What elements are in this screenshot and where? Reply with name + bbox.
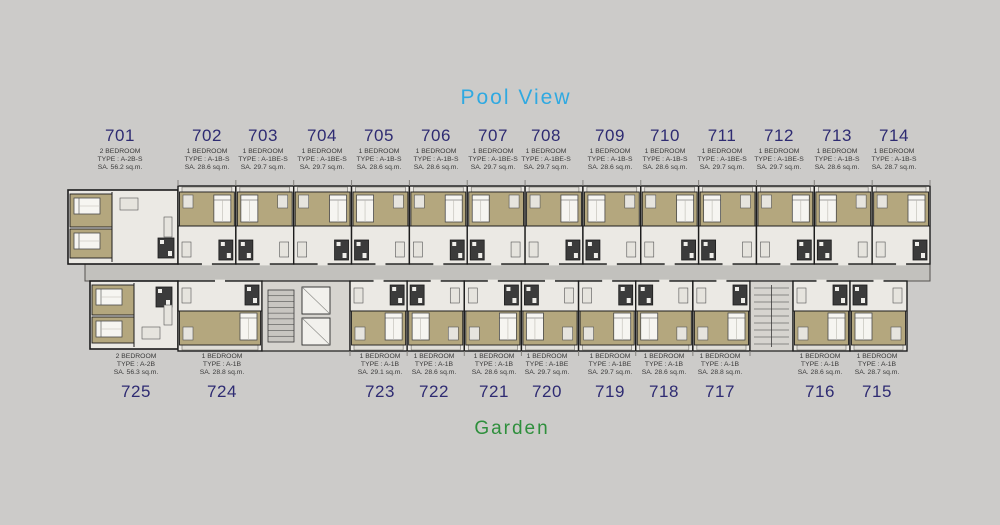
unit-number: 725 xyxy=(114,382,159,402)
unit-number: 715 xyxy=(855,382,900,402)
unit-label-702: 7021 BEDROOMTYPE : A-1B-SSA. 28.6 sq.m. xyxy=(185,126,230,172)
unit-number: 717 xyxy=(698,382,743,402)
unit-info: 1 BEDROOMTYPE : A-1BSA. 28.7 sq.m. xyxy=(855,353,900,377)
unit-number: 724 xyxy=(200,382,245,402)
unit-info: 1 BEDROOMTYPE : A-1B-SSA. 28.6 sq.m. xyxy=(357,148,402,172)
unit-info: 2 BEDROOMTYPE : A-2BSA. 56.3 sq.m. xyxy=(114,353,159,377)
unit-info: 1 BEDROOMTYPE : A-1BESA. 29.7 sq.m. xyxy=(588,353,633,377)
unit-label-710: 7101 BEDROOMTYPE : A-1B-SSA. 28.6 sq.m. xyxy=(643,126,688,172)
unit-number: 705 xyxy=(357,126,402,146)
unit-label-716: 1 BEDROOMTYPE : A-1BSA. 28.6 sq.m.716 xyxy=(798,353,843,402)
unit-number: 723 xyxy=(358,382,403,402)
unit-info: 1 BEDROOMTYPE : A-1BE-SSA. 29.7 sq.m. xyxy=(697,148,746,172)
unit-info: 1 BEDROOMTYPE : A-1B-SSA. 28.6 sq.m. xyxy=(185,148,230,172)
floor-plan-page: Pool View 7012 BEDROOMTYPE : A-2B-SSA. 5… xyxy=(0,0,1000,525)
garden-label: Garden xyxy=(474,418,549,440)
unit-number: 716 xyxy=(798,382,843,402)
unit-label-703: 7031 BEDROOMTYPE : A-1BE-SSA. 29.7 sq.m. xyxy=(238,126,287,172)
unit-info: 1 BEDROOMTYPE : A-1BE-SSA. 29.7 sq.m. xyxy=(521,148,570,172)
unit-info: 1 BEDROOMTYPE : A-1BE-SSA. 29.7 sq.m. xyxy=(754,148,803,172)
unit-label-708: 7081 BEDROOMTYPE : A-1BE-SSA. 29.7 sq.m. xyxy=(521,126,570,172)
unit-label-720: 1 BEDROOMTYPE : A-1BESA. 29.7 sq.m.720 xyxy=(525,353,570,402)
unit-info: 1 BEDROOMTYPE : A-1B-SSA. 28.6 sq.m. xyxy=(588,148,633,172)
unit-label-709: 7091 BEDROOMTYPE : A-1B-SSA. 28.6 sq.m. xyxy=(588,126,633,172)
unit-info: 1 BEDROOMTYPE : A-1BE-SSA. 29.7 sq.m. xyxy=(238,148,287,172)
unit-number: 702 xyxy=(185,126,230,146)
unit-number: 718 xyxy=(642,382,687,402)
unit-label-721: 1 BEDROOMTYPE : A-1BSA. 28.6 sq.m.721 xyxy=(472,353,517,402)
unit-number: 701 xyxy=(98,126,143,146)
unit-info: 1 BEDROOMTYPE : A-1BE-SSA. 29.7 sq.m. xyxy=(297,148,346,172)
unit-number: 704 xyxy=(297,126,346,146)
unit-number: 721 xyxy=(472,382,517,402)
unit-number: 722 xyxy=(412,382,457,402)
unit-number: 711 xyxy=(697,126,746,146)
floor-plan-drawing xyxy=(0,0,1000,525)
unit-label-724: 1 BEDROOMTYPE : A-1BSA. 28.8 sq.m.724 xyxy=(200,353,245,402)
unit-label-707: 7071 BEDROOMTYPE : A-1BE-SSA. 29.7 sq.m. xyxy=(468,126,517,172)
unit-label-717: 1 BEDROOMTYPE : A-1BSA. 28.8 sq.m.717 xyxy=(698,353,743,402)
unit-info: 2 BEDROOMTYPE : A-2B-SSA. 56.2 sq.m. xyxy=(98,148,143,172)
unit-number: 707 xyxy=(468,126,517,146)
unit-label-715: 1 BEDROOMTYPE : A-1BSA. 28.7 sq.m.715 xyxy=(855,353,900,402)
unit-info: 1 BEDROOMTYPE : A-1B-SSA. 28.6 sq.m. xyxy=(643,148,688,172)
unit-number: 708 xyxy=(521,126,570,146)
unit-number: 710 xyxy=(643,126,688,146)
unit-info: 1 BEDROOMTYPE : A-1BE-SSA. 29.7 sq.m. xyxy=(468,148,517,172)
unit-info: 1 BEDROOMTYPE : A-1B-SSA. 28.6 sq.m. xyxy=(815,148,860,172)
unit-label-701: 7012 BEDROOMTYPE : A-2B-SSA. 56.2 sq.m. xyxy=(98,126,143,172)
unit-info: 1 BEDROOMTYPE : A-1BSA. 28.6 sq.m. xyxy=(472,353,517,377)
unit-info: 1 BEDROOMTYPE : A-1BSA. 28.6 sq.m. xyxy=(642,353,687,377)
unit-number: 719 xyxy=(588,382,633,402)
unit-label-723: 1 BEDROOMTYPE : A-1BSA. 29.1 sq.m.723 xyxy=(358,353,403,402)
unit-number: 720 xyxy=(525,382,570,402)
unit-label-713: 7131 BEDROOMTYPE : A-1B-SSA. 28.6 sq.m. xyxy=(815,126,860,172)
unit-info: 1 BEDROOMTYPE : A-1BESA. 29.7 sq.m. xyxy=(525,353,570,377)
unit-number: 712 xyxy=(754,126,803,146)
unit-info: 1 BEDROOMTYPE : A-1BSA. 29.1 sq.m. xyxy=(358,353,403,377)
unit-number: 713 xyxy=(815,126,860,146)
unit-label-705: 7051 BEDROOMTYPE : A-1B-SSA. 28.6 sq.m. xyxy=(357,126,402,172)
unit-label-718: 1 BEDROOMTYPE : A-1BSA. 28.6 sq.m.718 xyxy=(642,353,687,402)
unit-label-712: 7121 BEDROOMTYPE : A-1BE-SSA. 29.7 sq.m. xyxy=(754,126,803,172)
unit-label-706: 7061 BEDROOMTYPE : A-1B-SSA. 28.6 sq.m. xyxy=(414,126,459,172)
unit-number: 703 xyxy=(238,126,287,146)
unit-label-725: 2 BEDROOMTYPE : A-2BSA. 56.3 sq.m.725 xyxy=(114,353,159,402)
unit-label-704: 7041 BEDROOMTYPE : A-1BE-SSA. 29.7 sq.m. xyxy=(297,126,346,172)
unit-info: 1 BEDROOMTYPE : A-1B-SSA. 28.7 sq.m. xyxy=(872,148,917,172)
unit-info: 1 BEDROOMTYPE : A-1BSA. 28.8 sq.m. xyxy=(200,353,245,377)
unit-info: 1 BEDROOMTYPE : A-1BSA. 28.6 sq.m. xyxy=(412,353,457,377)
unit-label-714: 7141 BEDROOMTYPE : A-1B-SSA. 28.7 sq.m. xyxy=(872,126,917,172)
unit-info: 1 BEDROOMTYPE : A-1BSA. 28.8 sq.m. xyxy=(698,353,743,377)
unit-label-711: 7111 BEDROOMTYPE : A-1BE-SSA. 29.7 sq.m. xyxy=(697,126,746,172)
unit-number: 714 xyxy=(872,126,917,146)
unit-label-719: 1 BEDROOMTYPE : A-1BESA. 29.7 sq.m.719 xyxy=(588,353,633,402)
unit-label-722: 1 BEDROOMTYPE : A-1BSA. 28.6 sq.m.722 xyxy=(412,353,457,402)
unit-info: 1 BEDROOMTYPE : A-1B-SSA. 28.6 sq.m. xyxy=(414,148,459,172)
unit-number: 709 xyxy=(588,126,633,146)
unit-info: 1 BEDROOMTYPE : A-1BSA. 28.6 sq.m. xyxy=(798,353,843,377)
unit-number: 706 xyxy=(414,126,459,146)
